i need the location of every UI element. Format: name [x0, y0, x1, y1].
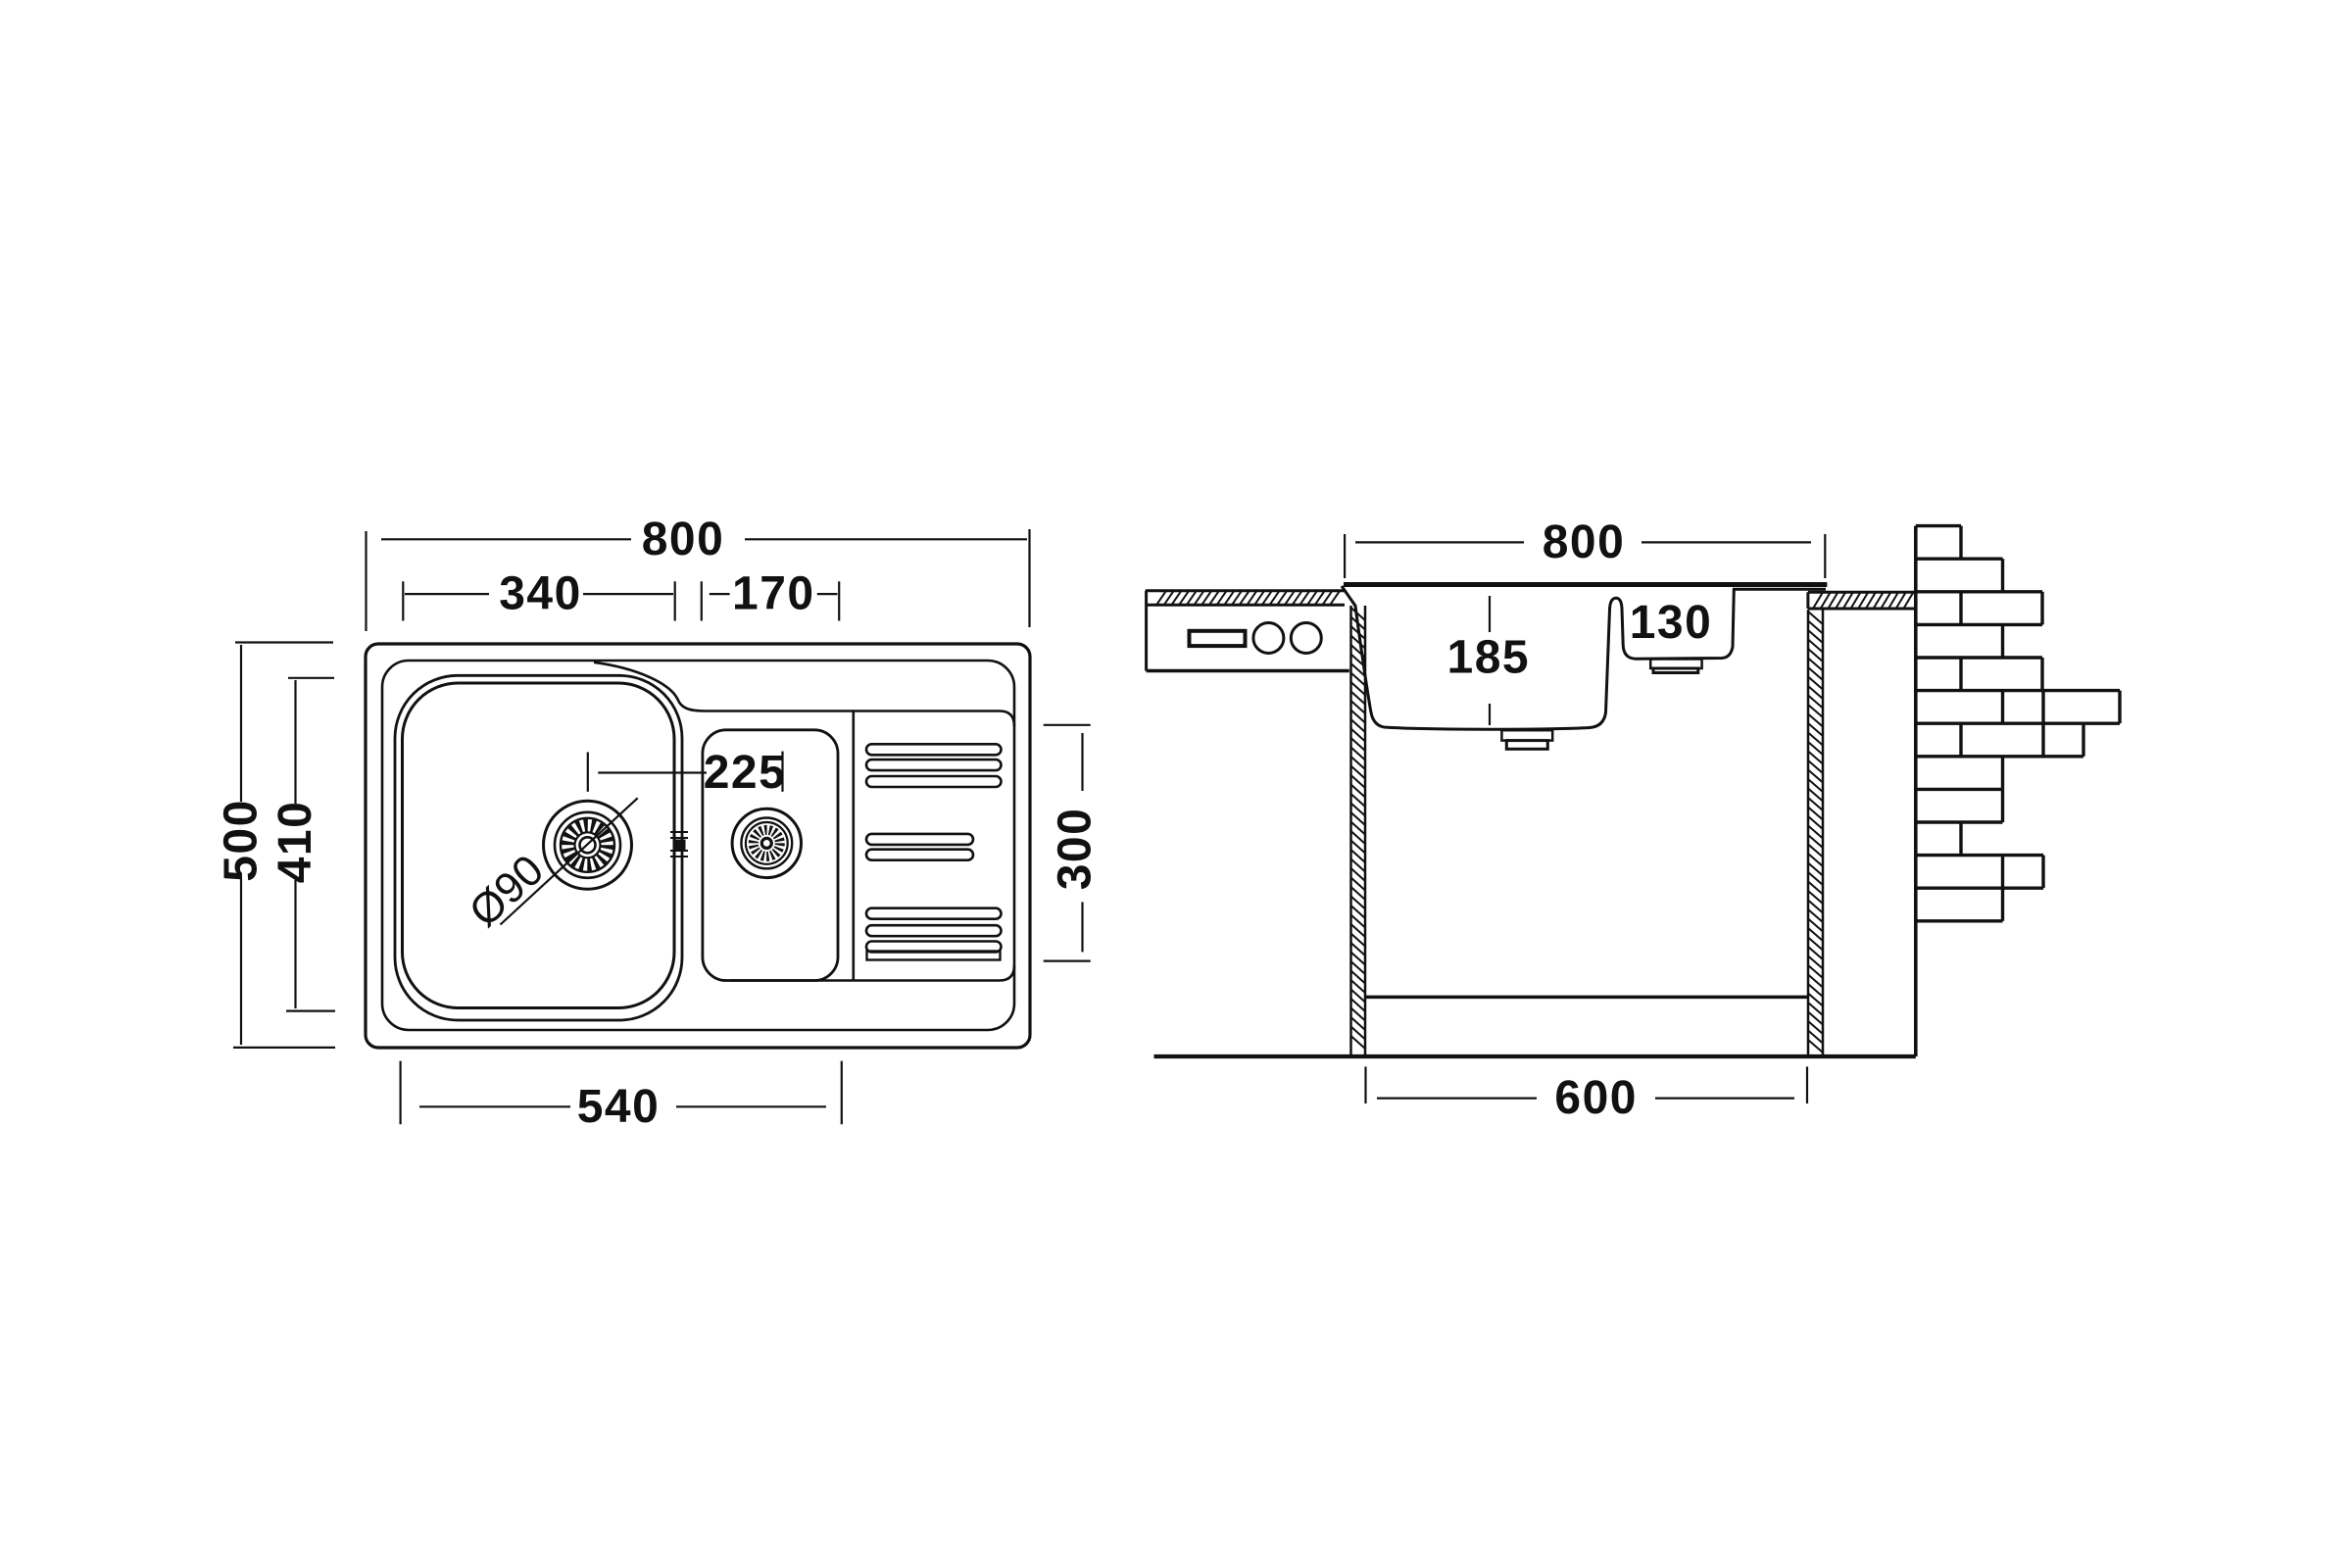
svg-text:800: 800: [642, 514, 725, 565]
svg-text:540: 540: [577, 1081, 661, 1133]
svg-text:225: 225: [704, 747, 787, 799]
svg-text:170: 170: [732, 568, 815, 620]
svg-text:410: 410: [269, 801, 321, 884]
svg-text:300: 300: [1050, 808, 1102, 891]
svg-text:185: 185: [1447, 632, 1531, 684]
svg-text:500: 500: [216, 799, 268, 882]
svg-text:800: 800: [1543, 516, 1626, 568]
svg-text:130: 130: [1630, 597, 1713, 649]
svg-text:340: 340: [499, 568, 582, 620]
svg-text:600: 600: [1554, 1072, 1638, 1124]
